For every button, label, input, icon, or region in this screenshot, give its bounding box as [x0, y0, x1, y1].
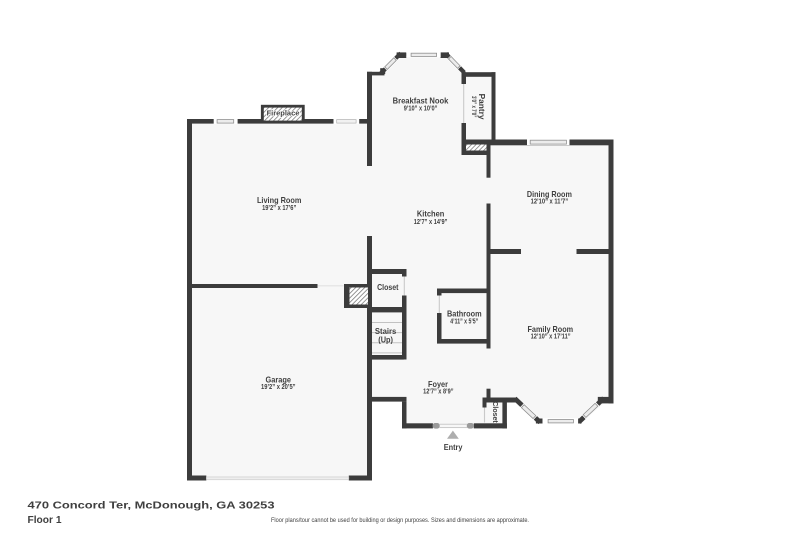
svg-text:Dining Room: Dining Room: [527, 189, 572, 199]
svg-text:Living Room: Living Room: [257, 195, 302, 205]
svg-text:Kitchen: Kitchen: [417, 209, 445, 219]
svg-text:Garage: Garage: [266, 374, 292, 384]
svg-text:12’7” x 8’9”: 12’7” x 8’9”: [423, 389, 453, 396]
svg-text:4’11” x 5’5”: 4’11” x 5’5”: [450, 318, 478, 325]
svg-text:Pantry: Pantry: [477, 94, 486, 120]
svg-text:12’10” x 11’7”: 12’10” x 11’7”: [531, 199, 569, 206]
svg-text:19’2” x 17’6”: 19’2” x 17’6”: [262, 205, 296, 212]
svg-text:470 Concord Ter, McDonough, GA: 470 Concord Ter, McDonough, GA 30253: [28, 501, 276, 512]
svg-text:Floor 1: Floor 1: [28, 515, 62, 526]
svg-text:Closet: Closet: [491, 401, 500, 423]
svg-text:19’2” x 20’5”: 19’2” x 20’5”: [261, 384, 296, 391]
svg-text:Entry: Entry: [444, 442, 463, 452]
svg-text:3’0” x 7’0”: 3’0” x 7’0”: [470, 96, 477, 117]
svg-text:Bathroom: Bathroom: [447, 308, 482, 318]
svg-text:Foyer: Foyer: [428, 379, 448, 389]
svg-text:12’7” x 14’9”: 12’7” x 14’9”: [414, 219, 448, 226]
svg-text:Breakfast Nook: Breakfast Nook: [393, 95, 449, 105]
svg-text:Floor plans/tour cannot be use: Floor plans/tour cannot be used for buil…: [271, 517, 529, 524]
svg-text:Fireplace: Fireplace: [267, 110, 300, 117]
svg-text:Family Room: Family Room: [528, 324, 574, 334]
svg-text:12’10” x 17’11”: 12’10” x 17’11”: [531, 334, 571, 341]
svg-text:(Up): (Up): [378, 336, 393, 345]
svg-text:Closet: Closet: [377, 283, 399, 292]
svg-text:9’10” x 10’0”: 9’10” x 10’0”: [404, 105, 438, 112]
